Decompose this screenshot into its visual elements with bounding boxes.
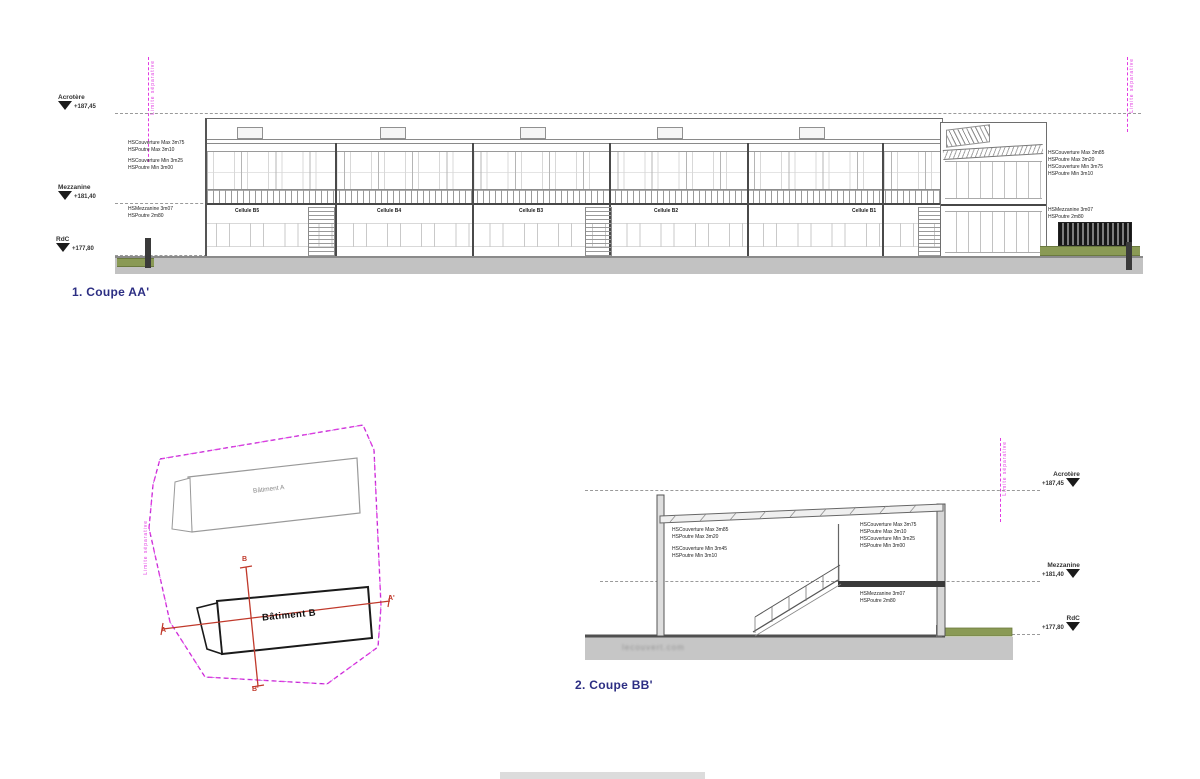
level-value: +181,40 [74,194,96,200]
aa-annotation-right-roof: HSCouverture Max 3m85 HSPoutre Max 3m20 … [1048,150,1104,178]
level-value: +177,80 [72,246,94,252]
annotation-line: HSPoutre 2m80 [860,598,905,605]
section-mark-b: B [242,556,247,563]
annotation-line: HSPoutre Max 3m10 [128,147,184,154]
level-name: Mezzanine [1042,562,1080,569]
aa-upper-glazing [945,161,1042,199]
aa-staircase [585,207,612,256]
annotation-line: HSCouverture Min 3m75 [1048,164,1104,171]
bb-annotation-right: HSCouverture Max 3m75 HSPoutre Max 3m10 … [860,522,916,550]
bb-right-wall [937,504,945,636]
aa-annotation-right-mezz: HSMezzanine 3m07 HSPoutre 2m80 [1048,207,1093,221]
annotation-line: HSPoutre 2m80 [128,213,173,220]
section-mark-a-prime: A' [388,595,395,602]
aa-boundary-label-right: Limite séparative [1129,58,1135,113]
aa-roof-screen [946,124,990,147]
building-b-annex [197,603,222,654]
aa-building-body: Cellule B5 Cellule B4 Cellule B3 Cellule… [205,118,943,257]
level-name: RdC [1042,615,1080,622]
bb-level-marker-rdc: RdC +177,80 [1042,615,1080,631]
aa-cell-label: Cellule B4 [377,208,401,214]
level-triangle-icon [1066,622,1080,631]
aa-upper-facade [207,151,942,191]
bb-annotation-left: HSCouverture Max 3m85 HSPoutre Max 3m20 … [672,527,728,560]
bb-annotation-mezz: HSMezzanine 3m07 HSPoutre 2m80 [860,591,905,605]
aa-cut-wall-hatch [1058,222,1132,246]
aa-staircase [308,207,335,256]
annotation-line: HSPoutre Min 3m10 [672,553,728,560]
section-mark-b-prime: B' [252,686,259,693]
level-name: Acrotère [58,94,96,101]
aa-roof-deck [207,139,942,144]
annotation-line: HSPoutre Min 3m00 [128,165,184,172]
drawing-sheet: Limite séparative Limite séparative Acro… [0,0,1200,779]
aa-cell-label: Cellule B5 [235,208,259,214]
aa-annotation-left-roof: HSCouverture Max 3m75 HSPoutre Max 3m10 … [128,140,184,172]
annotation-line: HSCouverture Max 3m85 [672,527,728,534]
aa-office-end [940,122,1047,257]
site-plan [128,415,408,715]
aa-cell-label: Cellule B1 [852,208,876,214]
aa-level-marker-acrotere: Acrotère +187,45 [58,94,96,110]
bb-mezzanine-slab [838,581,945,587]
annotation-line: HSCouverture Min 3m45 [672,546,728,553]
annotation-line: HSCouverture Max 3m75 [860,522,916,529]
aa-cell-label: Cellule B2 [654,208,678,214]
aa-glazed-canopy [943,144,1043,160]
aa-cell-label: Cellule B3 [519,208,543,214]
building-a-outline [188,458,360,532]
annotation-line: HSPoutre Min 3m10 [1048,171,1104,178]
annotation-line: HSCouverture Max 3m85 [1048,150,1104,157]
building-a-annex [172,478,192,532]
bb-level-marker-mezzanine: Mezzanine +181,40 [1042,562,1080,578]
bb-level-marker-acrotere: Acrotère +187,45 [1042,471,1080,487]
level-triangle-icon [1066,478,1080,487]
annotation-line: HSPoutre Max 3m20 [1048,157,1104,164]
annotation-line: HSCouverture Min 3m25 [128,158,184,165]
level-triangle-icon [1066,569,1080,578]
annotation-line: HSCouverture Min 3m25 [860,536,916,543]
aa-mezzanine-floor [207,203,942,205]
section-mark-a: A [161,627,166,634]
aa-green-strip-right [1040,246,1140,256]
annotation-line: HSPoutre 2m80 [1048,214,1093,221]
level-value: +181,40 [1042,572,1064,578]
annotation-line: HSPoutre Max 3m10 [860,529,916,536]
annotation-line: HSPoutre Max 3m20 [672,534,728,541]
level-value: +177,80 [1042,625,1064,631]
aa-cell-divider [747,143,749,256]
aa-lower-glazing [945,211,1042,253]
level-value: +187,45 [74,104,96,110]
annotation-line: HSPoutre Min 3m00 [860,543,916,550]
bb-stair-railing [755,565,840,617]
level-triangle-icon [56,243,70,252]
aa-boundary-line-right [1127,57,1128,132]
bb-title: 2. Coupe BB' [575,678,653,692]
bb-green-strip [940,628,1012,636]
aa-title: 1. Coupe AA' [72,285,149,299]
aa-ground [115,256,1143,274]
bb-roof-band [660,504,943,523]
level-name: RdC [56,236,94,243]
annotation-line: HSCouverture Max 3m75 [128,140,184,147]
bb-stair-stringer [753,580,838,632]
aa-cell-divider [472,143,474,256]
annotation-line: HSMezzanine 3m07 [128,206,173,213]
aa-level-marker-mezzanine: Mezzanine +181,40 [58,184,96,200]
aa-annotation-left-mezz: HSMezzanine 3m07 HSPoutre 2m80 [128,206,173,220]
level-name: Acrotère [1042,471,1080,478]
level-name: Mezzanine [58,184,96,191]
level-triangle-icon [58,191,72,200]
annotation-line: HSMezzanine 3m07 [860,591,905,598]
annotation-line: HSMezzanine 3m07 [1048,207,1093,214]
aa-cell-divider [882,143,884,256]
aa-rooftop-unit [799,127,825,139]
aa-cell-divider [335,143,337,256]
plan-boundary-label: Limite séparative [143,520,149,575]
aa-rooftop-unit [237,127,263,139]
bottom-gray-bar [500,772,705,779]
bb-watermark: lecouvert.com [622,643,685,652]
aa-rooftop-unit [380,127,406,139]
level-value: +187,45 [1042,481,1064,487]
aa-office-floor [941,204,1046,206]
aa-fence-post-left [145,238,151,268]
aa-level-line-acrotere [115,113,1141,114]
aa-fence-post-right [1126,242,1132,270]
aa-rooftop-unit [520,127,546,139]
bb-stair-stringer-2 [755,584,841,636]
aa-mezzanine-railing [207,189,942,203]
aa-boundary-label-left: Limite séparative [150,60,156,115]
aa-level-marker-rdc: RdC +177,80 [56,236,94,252]
aa-rooftop-unit [657,127,683,139]
level-triangle-icon [58,101,72,110]
